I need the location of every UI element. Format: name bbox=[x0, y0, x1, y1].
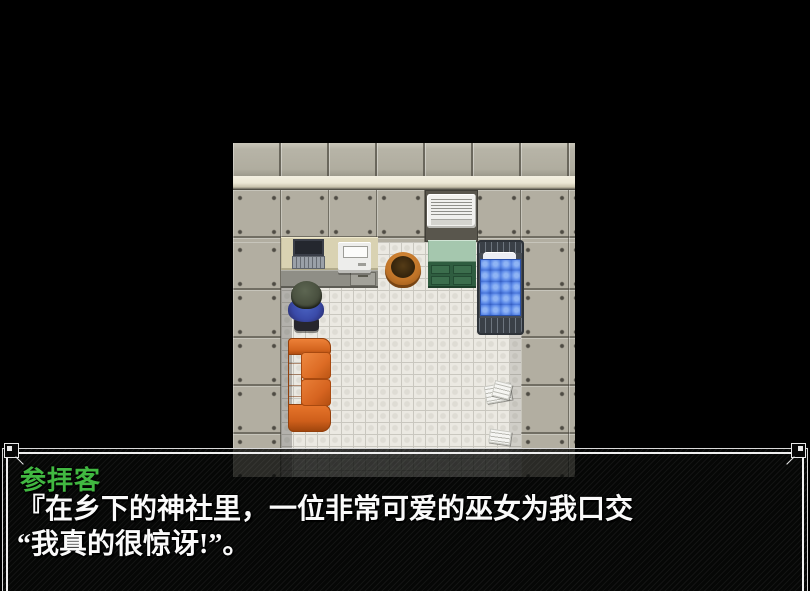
seated-character bbox=[288, 281, 324, 333]
wall-back bbox=[233, 190, 575, 242]
couch-backrest bbox=[288, 352, 302, 407]
cabinet-drawers bbox=[428, 262, 476, 288]
scattered-paper bbox=[488, 429, 512, 446]
corner-square bbox=[7, 446, 12, 451]
wall-top-blocks bbox=[233, 143, 575, 176]
air-conditioner bbox=[427, 194, 476, 228]
laptop-screen bbox=[293, 239, 324, 256]
couch-armrest-bottom bbox=[288, 404, 331, 432]
ac-strip bbox=[431, 219, 472, 225]
waste-basket bbox=[385, 248, 421, 288]
printer-slot bbox=[343, 246, 368, 258]
cabinet-drawer bbox=[453, 276, 472, 285]
wall-right bbox=[521, 242, 575, 477]
dialog-line-2: “我真的很惊讶!”。 bbox=[17, 528, 250, 562]
frame-corner-left-icon bbox=[4, 443, 19, 458]
desk-drawer bbox=[350, 272, 376, 286]
cabinet-drawer bbox=[431, 265, 450, 274]
bed-footboard bbox=[479, 318, 522, 333]
ac-vents bbox=[431, 199, 472, 215]
bed bbox=[477, 240, 524, 335]
dialog-line-1: 『在乡下的神社里，一位非常可爱的巫女为我口交 bbox=[17, 493, 633, 527]
corner-diagonal bbox=[786, 456, 794, 464]
couch-cushion bbox=[301, 379, 331, 406]
wall-ledge bbox=[233, 176, 575, 190]
wall-left bbox=[233, 242, 281, 477]
corner-square bbox=[798, 446, 803, 451]
frame-corner-right-icon bbox=[791, 443, 806, 458]
laptop-keyboard bbox=[292, 256, 325, 269]
character-head bbox=[291, 281, 322, 309]
basket-opening bbox=[391, 256, 415, 278]
laptop bbox=[292, 239, 325, 269]
speaker-name: 参拝客 bbox=[20, 460, 101, 497]
bed-blanket bbox=[480, 259, 521, 316]
game-window: 参拝客 『在乡下的神社里，一位非常可爱的巫女为我口交 “我真的很惊讶!”。 bbox=[0, 0, 810, 591]
game-scene[interactable] bbox=[233, 143, 575, 477]
couch-cushion bbox=[301, 352, 331, 379]
cabinet-top bbox=[428, 240, 476, 262]
printer bbox=[338, 242, 371, 273]
printer-button bbox=[358, 263, 366, 266]
cabinet-drawer bbox=[453, 265, 472, 274]
cabinet-drawer bbox=[431, 276, 450, 285]
couch bbox=[288, 338, 333, 432]
dialog-box[interactable]: 参拝客 『在乡下的神社里，一位非常可爱的巫女为我口交 “我真的很惊讶!”。 bbox=[2, 448, 808, 591]
